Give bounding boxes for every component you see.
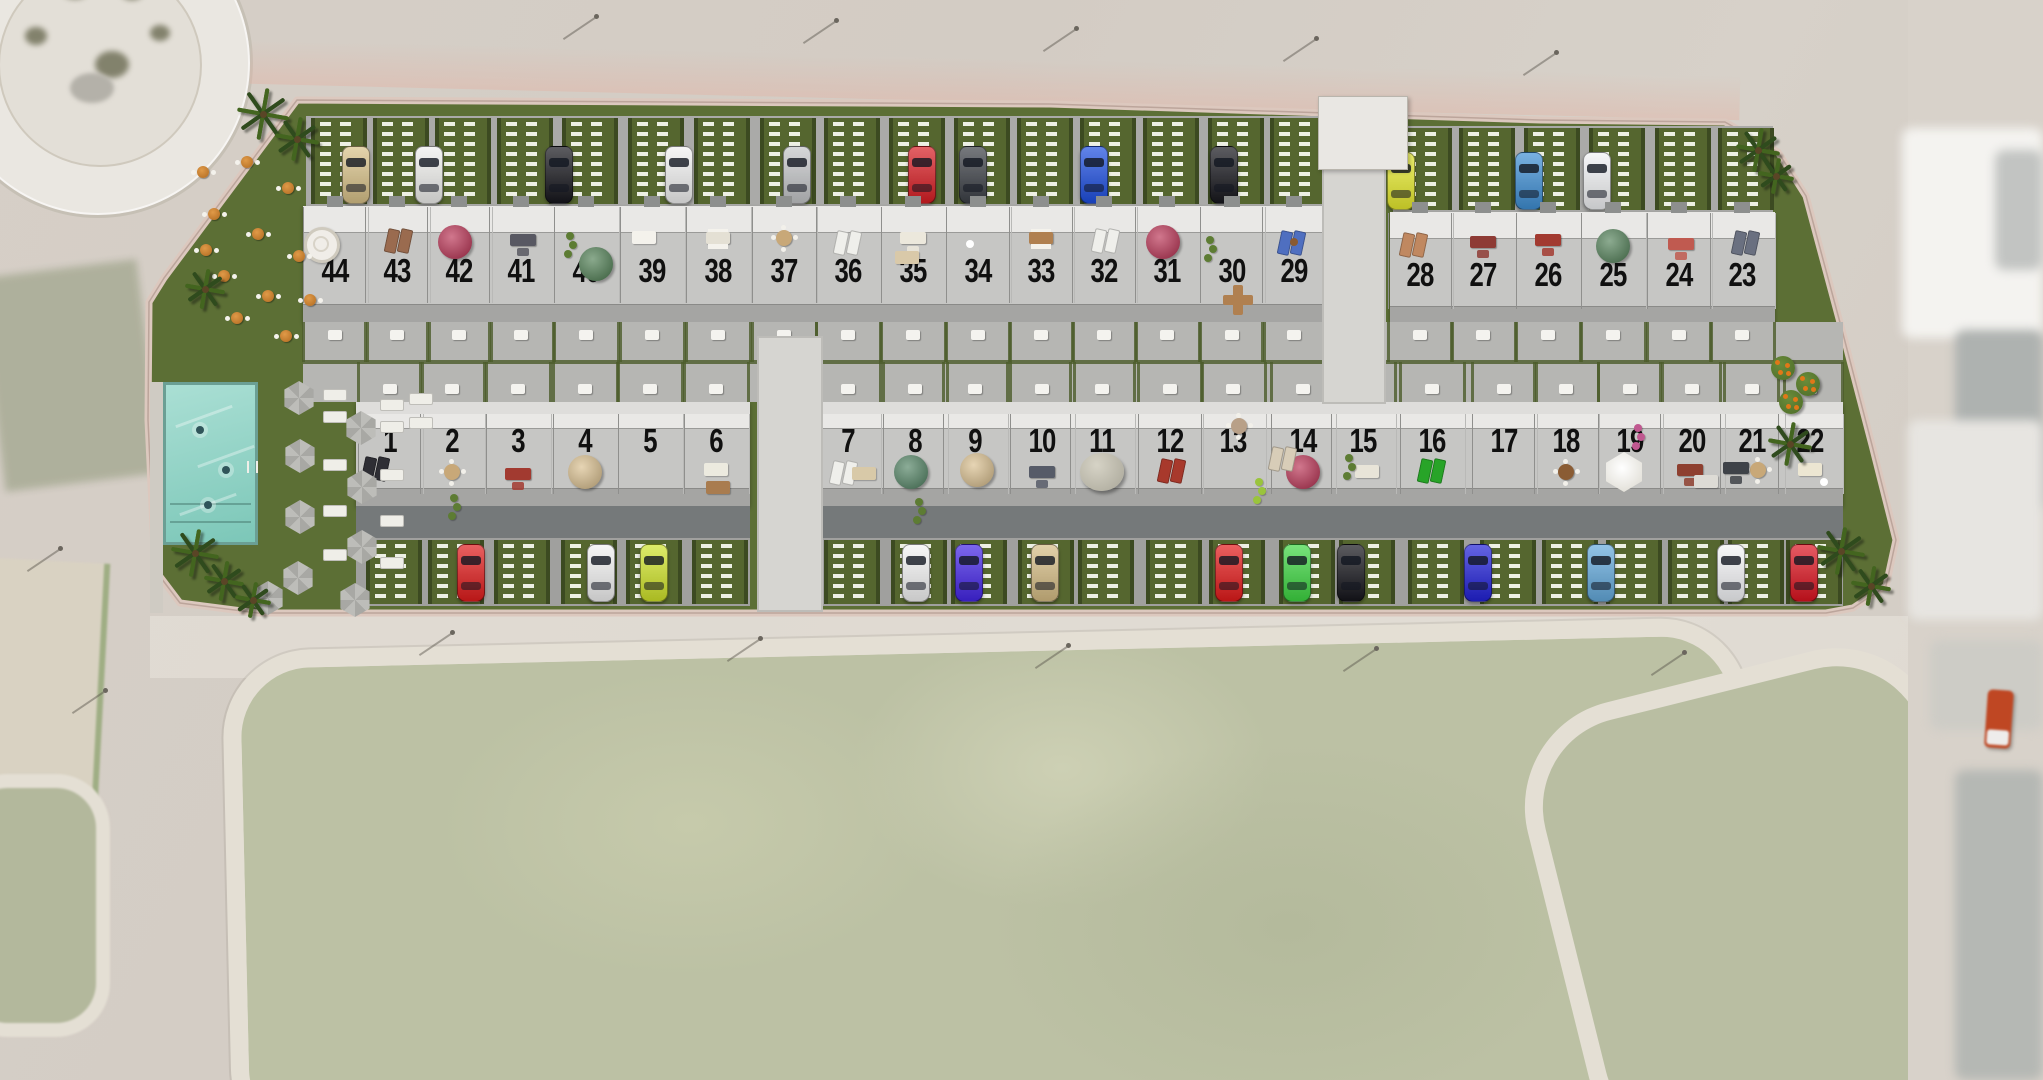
parking-bay	[1459, 128, 1515, 210]
unit-number: 5	[628, 422, 672, 460]
car-rear-window	[419, 184, 439, 192]
unit-entry	[389, 196, 405, 207]
pool-umbrella-icon	[281, 561, 315, 595]
hedge-line	[683, 362, 686, 402]
unit-entry	[710, 196, 726, 207]
mat-icon	[1355, 465, 1379, 478]
sun-lounger	[380, 399, 404, 411]
parasol-top	[252, 228, 264, 240]
courtyard-table	[390, 330, 404, 340]
hedge-line	[1841, 362, 1844, 402]
bay-stripes	[1155, 544, 1166, 600]
courtyard-table	[452, 330, 466, 340]
chair-dot	[256, 294, 261, 299]
driveway-band	[820, 506, 1843, 538]
parking-bay	[1718, 128, 1774, 210]
bay-stripes	[523, 544, 534, 600]
hedge-line	[1137, 362, 1140, 402]
bush-icon	[453, 503, 461, 511]
chair-dot	[235, 160, 240, 165]
car-rear-window	[669, 184, 689, 192]
palm-trunk-dot	[294, 136, 301, 143]
dot-icon	[966, 240, 974, 248]
bay-stripes	[375, 544, 386, 600]
hedge-line	[946, 362, 949, 402]
bay-stripes	[1087, 544, 1098, 600]
courtyard-table	[445, 384, 459, 394]
parking-bay	[692, 540, 748, 604]
parasol-top	[293, 250, 305, 262]
bay-stripes	[1618, 132, 1629, 206]
car-windshield	[1214, 158, 1234, 167]
chair-dot	[1755, 479, 1760, 484]
orange-dot	[1800, 376, 1805, 381]
bay-stripes	[444, 122, 455, 200]
bay-stripes	[1727, 132, 1738, 206]
hedge-line	[751, 322, 754, 362]
unit-entry	[1096, 196, 1112, 207]
courtyard-table	[511, 384, 525, 394]
bush-icon	[1348, 463, 1356, 471]
courtyard-table	[906, 330, 920, 340]
entrance-structure	[1318, 96, 1408, 170]
orange-dot	[1794, 405, 1799, 410]
car-rear-window	[912, 184, 932, 192]
hedge-line	[1069, 362, 1072, 402]
parking-bay	[824, 118, 880, 204]
site-plan-canvas: 4443424140393837363534333231302928272625…	[0, 0, 2043, 1080]
chair-dot	[276, 186, 281, 191]
bush-icon	[1253, 496, 1261, 504]
hedge-line	[1009, 362, 1012, 402]
courtyard-table	[1745, 384, 1759, 394]
bay-stripes	[437, 544, 448, 600]
hedge-line	[485, 362, 488, 402]
car-windshield	[1721, 556, 1741, 565]
bush-icon	[915, 498, 923, 506]
chair-dot	[255, 160, 260, 165]
sofa-icon	[1036, 480, 1048, 488]
hedge-line	[882, 362, 885, 402]
bush-icon	[1209, 245, 1217, 253]
car-windshield	[549, 158, 569, 167]
hedge-line	[1773, 322, 1776, 362]
courtyard-table	[1226, 384, 1240, 394]
unit-entry	[327, 196, 343, 207]
sofa-icon	[1535, 234, 1561, 246]
car-rear-window	[787, 184, 807, 192]
light-blue-car	[1587, 544, 1615, 602]
bay-stripes	[1697, 544, 1708, 600]
driveway-band	[356, 506, 750, 538]
car-rear-window	[963, 184, 983, 192]
bush-icon	[1343, 472, 1351, 480]
white-car	[902, 544, 930, 602]
parking-bay	[1146, 540, 1202, 604]
orange-dot	[1803, 386, 1808, 391]
orange-dot	[1793, 397, 1798, 402]
chair-dot	[194, 248, 199, 253]
unit-number: 32	[1082, 252, 1126, 290]
courtyard-table	[1623, 384, 1637, 394]
bay-stripes	[1172, 122, 1183, 200]
bay-stripes	[1237, 122, 1248, 200]
palm-trunk-dot	[221, 578, 228, 585]
sun-lounger	[380, 515, 404, 527]
bay-stripes	[570, 544, 581, 600]
unit-number: 33	[1019, 252, 1063, 290]
table-top	[444, 464, 460, 480]
palm-trunk-dot	[1787, 441, 1794, 448]
black-car	[545, 146, 573, 204]
orange-dot	[1783, 394, 1788, 399]
hedge-line	[1515, 322, 1518, 362]
swimmer-dot	[204, 501, 212, 509]
car-windshield	[1219, 556, 1239, 565]
sofa-icon	[900, 232, 926, 244]
sun-lounger	[323, 549, 347, 561]
car-rear-window	[1519, 190, 1539, 198]
chair-dot	[1236, 435, 1241, 440]
bush-icon	[566, 232, 574, 240]
parking-bay	[435, 118, 491, 204]
hedge-line	[1463, 362, 1466, 402]
courtyard-table	[841, 330, 855, 340]
unit-number: 6	[694, 422, 738, 460]
bay-stripes	[1279, 122, 1290, 200]
unit-entry	[1605, 202, 1621, 213]
sofa-icon	[1477, 250, 1489, 258]
sofa-icon	[510, 234, 536, 246]
palm-trunk-dot	[202, 286, 209, 293]
parasol-icon	[960, 453, 994, 487]
parking-bay	[824, 540, 880, 604]
unit-number: 12	[1148, 422, 1192, 460]
car-rear-window	[1391, 190, 1411, 198]
bay-stripes	[402, 122, 413, 200]
mat-icon	[1798, 463, 1822, 476]
hedge-line	[1270, 362, 1273, 402]
bush-icon	[569, 241, 577, 249]
chair-dot	[439, 469, 444, 474]
orange-tree-icon	[1796, 372, 1820, 396]
bay-stripes	[1368, 544, 1379, 600]
chair-dot	[1563, 459, 1568, 464]
bay-stripes	[833, 122, 844, 200]
bay-stripes	[1425, 132, 1436, 206]
bay-stripes	[1299, 122, 1310, 200]
bush-icon	[1258, 487, 1266, 495]
unit-entry	[840, 196, 856, 207]
courtyard-table	[1225, 330, 1239, 340]
unit-entry	[451, 196, 467, 207]
dining-table-icon	[706, 232, 730, 244]
white-car	[415, 146, 443, 204]
bay-stripes	[701, 544, 712, 600]
hedge-line	[1264, 362, 1267, 402]
table-top	[1558, 464, 1574, 480]
palm-trunk-dot	[260, 111, 267, 118]
courtyard-table	[1735, 330, 1749, 340]
car-rear-window	[1219, 582, 1239, 590]
hedge-line	[1134, 322, 1137, 362]
mat-icon	[1694, 475, 1718, 488]
chair-dot	[1755, 457, 1760, 462]
hedge-line	[747, 362, 750, 402]
bay-stripes	[320, 122, 331, 200]
unit-number: 24	[1657, 256, 1701, 294]
orange-dot	[1785, 363, 1790, 368]
car-rear-window	[959, 582, 979, 590]
bay-stripes	[1677, 544, 1688, 600]
unit-number: 20	[1670, 422, 1714, 460]
cross-b	[1233, 285, 1243, 315]
bay-stripes	[382, 122, 393, 200]
courtyard-table	[1541, 330, 1555, 340]
beige-car	[342, 146, 370, 204]
sofa-icon	[1668, 238, 1694, 250]
hedge-line	[364, 322, 367, 362]
courtyard-table	[1095, 384, 1109, 394]
palm-trunk-dot	[1838, 548, 1845, 555]
car-windshield	[1035, 556, 1055, 565]
bush-icon	[913, 516, 921, 524]
courtyard-table	[1413, 330, 1427, 340]
unit-number: 3	[496, 422, 540, 460]
car-rear-window	[1287, 582, 1307, 590]
tree-icon	[579, 247, 613, 281]
orange-dot	[1811, 387, 1816, 392]
swimmer-dot	[222, 466, 230, 474]
parking-bay	[1655, 128, 1711, 210]
parking-bay	[1143, 118, 1199, 204]
chair-dot	[225, 316, 230, 321]
bay-stripes	[1615, 544, 1626, 600]
unit-entry	[1540, 202, 1556, 213]
red-car	[457, 544, 485, 602]
courtyard-table	[1287, 330, 1301, 340]
chair-dot	[274, 334, 279, 339]
courtyard-table	[1497, 384, 1511, 394]
courtyard-table	[841, 384, 855, 394]
car-windshield	[346, 158, 366, 167]
bay-stripes	[853, 122, 864, 200]
mat-icon	[704, 463, 728, 476]
bush-icon	[1345, 454, 1353, 462]
bush-icon	[1634, 424, 1642, 432]
unit-entry	[1412, 202, 1428, 213]
parasol-top	[282, 182, 294, 194]
car-windshield	[787, 158, 807, 167]
unit-number: 34	[956, 252, 1000, 290]
blue-car	[1515, 152, 1543, 210]
car-windshield	[1587, 164, 1607, 173]
chair-dot	[211, 170, 216, 175]
chair-dot	[246, 232, 251, 237]
hedge-line	[617, 362, 620, 402]
palm-trunk-dot	[1868, 583, 1875, 590]
unit-number: 8	[893, 422, 937, 460]
chair-dot	[232, 274, 237, 279]
car-rear-window	[1794, 582, 1814, 590]
table-top	[1231, 418, 1247, 434]
palm-trunk-dot	[1755, 147, 1762, 154]
unit-number: 26	[1526, 256, 1570, 294]
car-windshield	[419, 158, 439, 167]
hedge-line	[1659, 362, 1662, 402]
sofa-icon	[505, 468, 531, 480]
chair-dot	[222, 212, 227, 217]
pool-ladder-icon	[247, 461, 258, 473]
orange-dot	[1778, 370, 1783, 375]
unit-number: 28	[1398, 256, 1442, 294]
bush-icon	[564, 250, 572, 258]
hedge-line	[1450, 322, 1453, 362]
bush-icon	[1204, 254, 1212, 262]
bush-icon	[1632, 442, 1640, 450]
bay-stripes	[1468, 132, 1479, 206]
parasol-icon	[438, 225, 472, 259]
courtyard-table	[1425, 384, 1439, 394]
sun-lounger	[323, 389, 347, 401]
blue-car	[1464, 544, 1492, 602]
courtyard-table	[514, 330, 528, 340]
courtyard-table	[645, 330, 659, 340]
black-car	[1337, 544, 1365, 602]
unit-number: 17	[1482, 422, 1526, 460]
hedge-line	[1646, 322, 1649, 362]
hedge-line	[1008, 322, 1011, 362]
chair-dot	[771, 235, 776, 240]
unit-number: 16	[1410, 422, 1454, 460]
chair-dot	[307, 254, 312, 259]
white-car	[1717, 544, 1745, 602]
bay-stripes	[1664, 132, 1675, 206]
pool-streak	[175, 405, 232, 428]
hedge-line	[302, 322, 305, 362]
chair-dot	[1248, 423, 1253, 428]
courtyard-table	[1035, 384, 1049, 394]
unit-entry	[513, 196, 529, 207]
palm-trunk-dot	[192, 550, 199, 557]
unit-number: 30	[1210, 252, 1254, 290]
bush-icon	[918, 507, 926, 515]
walkway	[757, 336, 823, 612]
unit-number: 29	[1272, 252, 1316, 290]
sofa-icon	[1730, 476, 1742, 484]
dining-table-icon	[1029, 232, 1053, 244]
car-rear-window	[1591, 582, 1611, 590]
pool-deck	[150, 382, 163, 613]
hedge-line	[1399, 362, 1402, 402]
car-rear-window	[1721, 582, 1741, 590]
courtyard-table	[968, 384, 982, 394]
chair-dot	[245, 316, 250, 321]
roof-lower-strip	[303, 304, 1326, 323]
unit-entry	[1033, 196, 1049, 207]
pool	[163, 382, 258, 545]
bay-stripes	[1437, 544, 1448, 600]
unit-entry	[1286, 196, 1302, 207]
hedge-line	[553, 322, 556, 362]
parasol-top	[231, 312, 243, 324]
swimmer-dot	[196, 426, 204, 434]
table-top	[1750, 462, 1766, 478]
sun-lounger	[323, 411, 347, 423]
bush-icon	[448, 512, 456, 520]
unit-number: 10	[1020, 422, 1064, 460]
unit-number: 18	[1544, 422, 1588, 460]
pool-umbrella-icon	[283, 439, 317, 473]
bay-stripes	[1635, 544, 1646, 600]
chair-dot	[298, 298, 303, 303]
parasol-top	[241, 156, 253, 168]
parasol-top	[197, 166, 209, 178]
red-car	[1790, 544, 1818, 602]
chair-dot	[266, 232, 271, 237]
parasol-top	[304, 294, 316, 306]
hedge-line	[1597, 362, 1600, 402]
unit-entry	[905, 196, 921, 207]
car-windshield	[1794, 556, 1814, 565]
parasol-icon	[894, 455, 928, 489]
courtyard-table	[383, 384, 397, 394]
unit-entry	[1734, 202, 1750, 213]
orange-dot	[1775, 360, 1780, 365]
bay-stripes	[506, 122, 517, 200]
parking-bay	[1078, 540, 1134, 604]
hedge-line	[1387, 322, 1390, 362]
unit-number: 37	[762, 252, 806, 290]
pool-umbrella-icon	[283, 500, 317, 534]
bay-stripes	[1571, 544, 1582, 600]
hedge-line	[1471, 362, 1474, 402]
bay-stripes	[637, 122, 648, 200]
orange-tree-icon	[1779, 390, 1803, 414]
courtyard-table	[709, 384, 723, 394]
car-windshield	[1468, 556, 1488, 565]
bay-stripes	[1109, 122, 1120, 200]
sun-lounger	[380, 421, 404, 433]
sun-lounger	[323, 459, 347, 471]
sofa-icon	[512, 482, 524, 490]
car-rear-window	[1468, 582, 1488, 590]
palm-trunk-dot	[250, 597, 257, 604]
car-rear-window	[591, 582, 611, 590]
white-car	[587, 544, 615, 602]
car-windshield	[1287, 556, 1307, 565]
car-rear-window	[644, 582, 664, 590]
courtyard-table	[1606, 330, 1620, 340]
unit-entry	[1475, 202, 1491, 213]
hedge-line	[1709, 322, 1712, 362]
car-windshield	[906, 556, 926, 565]
hedge-line	[685, 322, 688, 362]
unit-number: 39	[630, 252, 674, 290]
bush-icon	[1206, 236, 1214, 244]
unit-entry	[578, 196, 594, 207]
chair-dot	[191, 170, 196, 175]
chair-dot	[202, 212, 207, 217]
bay-stripes	[769, 122, 780, 200]
mat-icon	[632, 231, 656, 244]
orange-dot	[1810, 379, 1815, 384]
mat-icon	[895, 251, 919, 264]
bay-stripes	[721, 544, 732, 600]
parking-bay	[1668, 540, 1724, 604]
bush-icon	[1637, 433, 1645, 441]
bay-stripes	[1757, 544, 1768, 600]
